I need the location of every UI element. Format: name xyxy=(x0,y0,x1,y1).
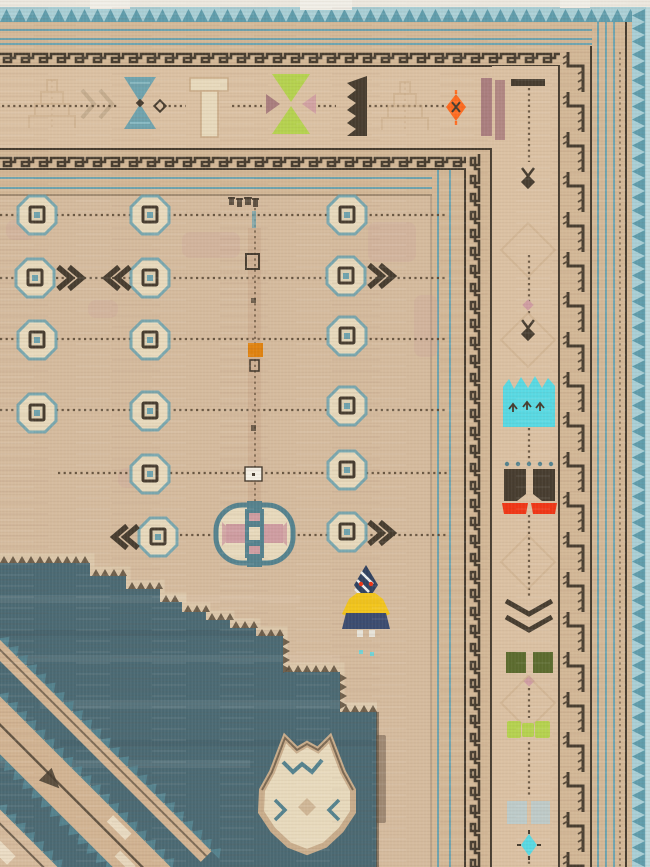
rug-illustration xyxy=(0,0,650,867)
weave-texture xyxy=(0,0,650,867)
rug-photograph xyxy=(0,0,650,867)
